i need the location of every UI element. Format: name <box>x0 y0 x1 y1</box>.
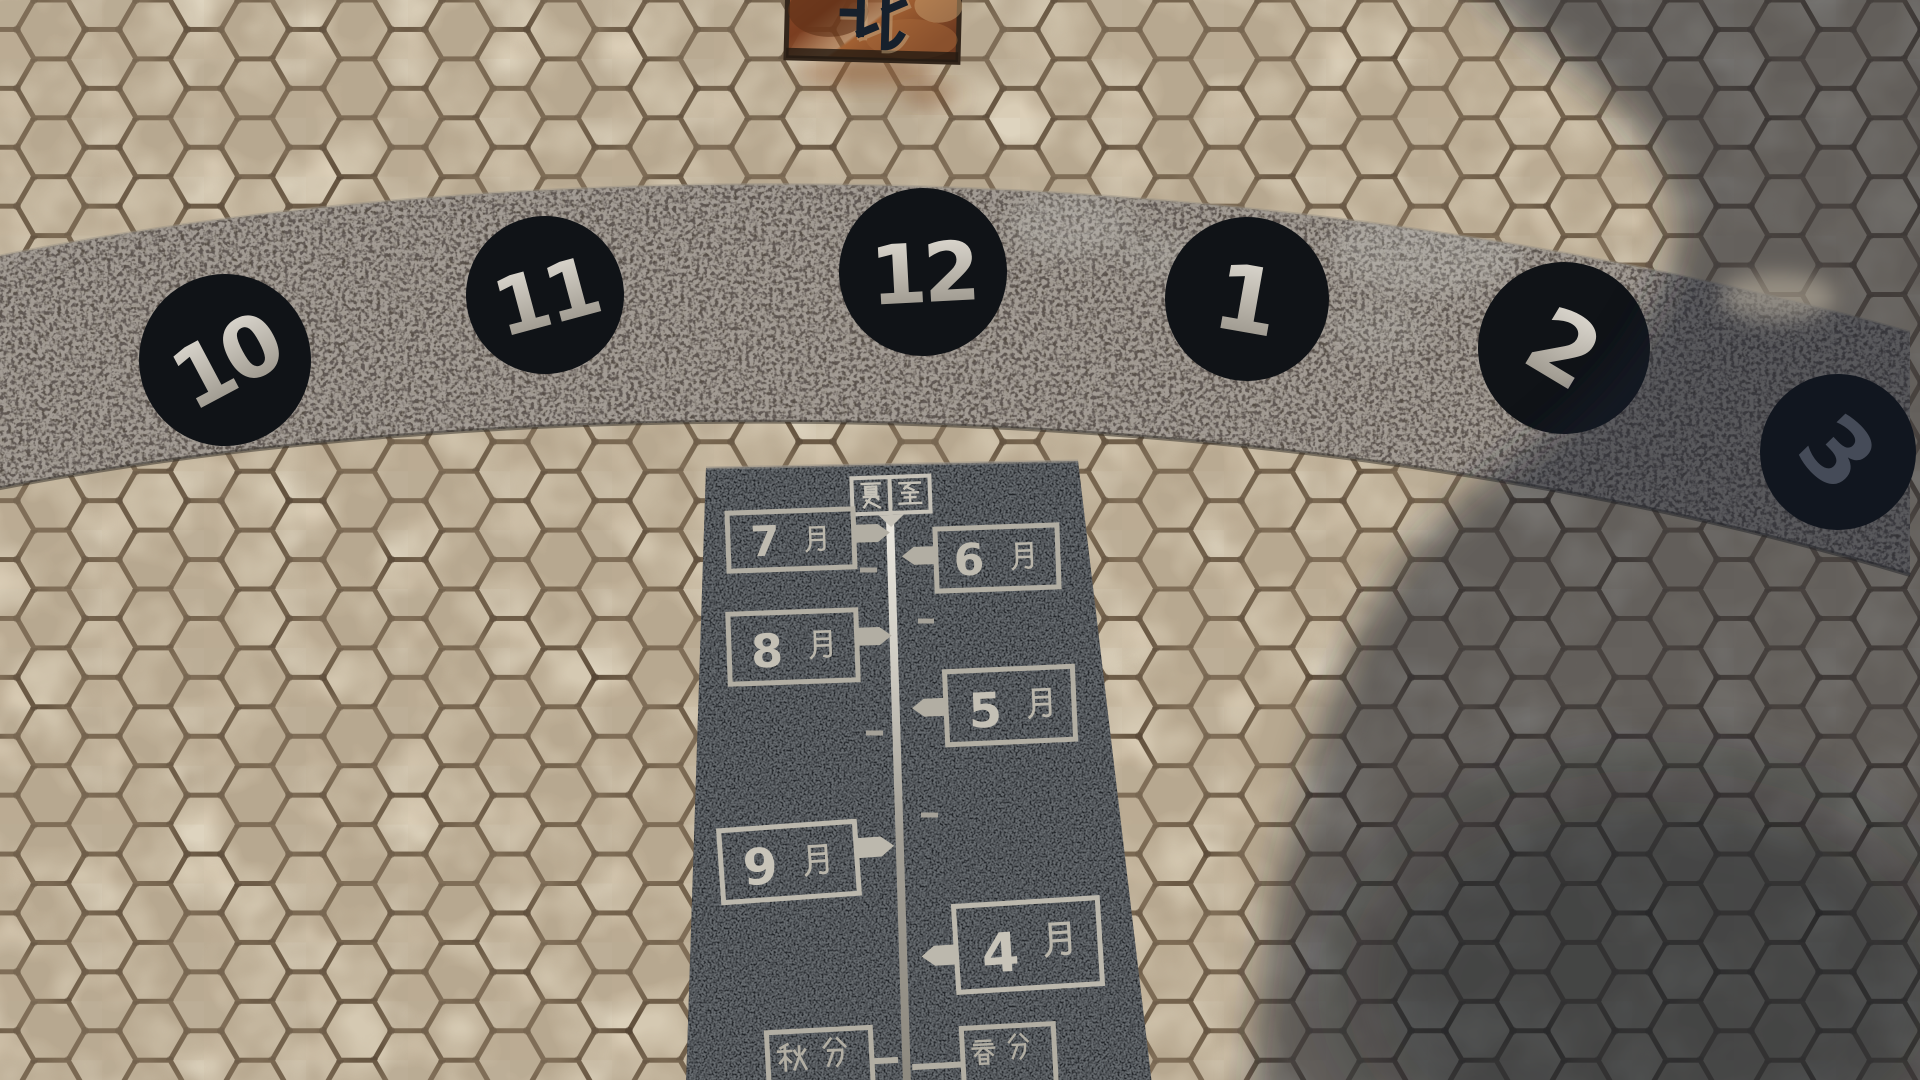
sundial-photo: 10 11 12 1 2 3 <box>0 0 1920 1080</box>
equinox-autumn-connector <box>872 1060 898 1061</box>
month-number-6: 6 <box>953 534 985 586</box>
month-number-8: 8 <box>750 623 784 678</box>
equinox-spring-connector <box>912 1064 963 1067</box>
month-scale-panel: 7 6 8 5 <box>686 461 1152 1080</box>
sundial-scene: 10 11 12 1 2 3 <box>0 0 1920 1080</box>
month-number-5: 5 <box>967 682 1003 739</box>
hour-number-12: 12 <box>868 224 979 324</box>
month-number-4: 4 <box>980 921 1021 986</box>
month-number-9: 9 <box>741 837 780 897</box>
month-number-7: 7 <box>750 516 781 566</box>
north-plaque <box>786 0 963 62</box>
